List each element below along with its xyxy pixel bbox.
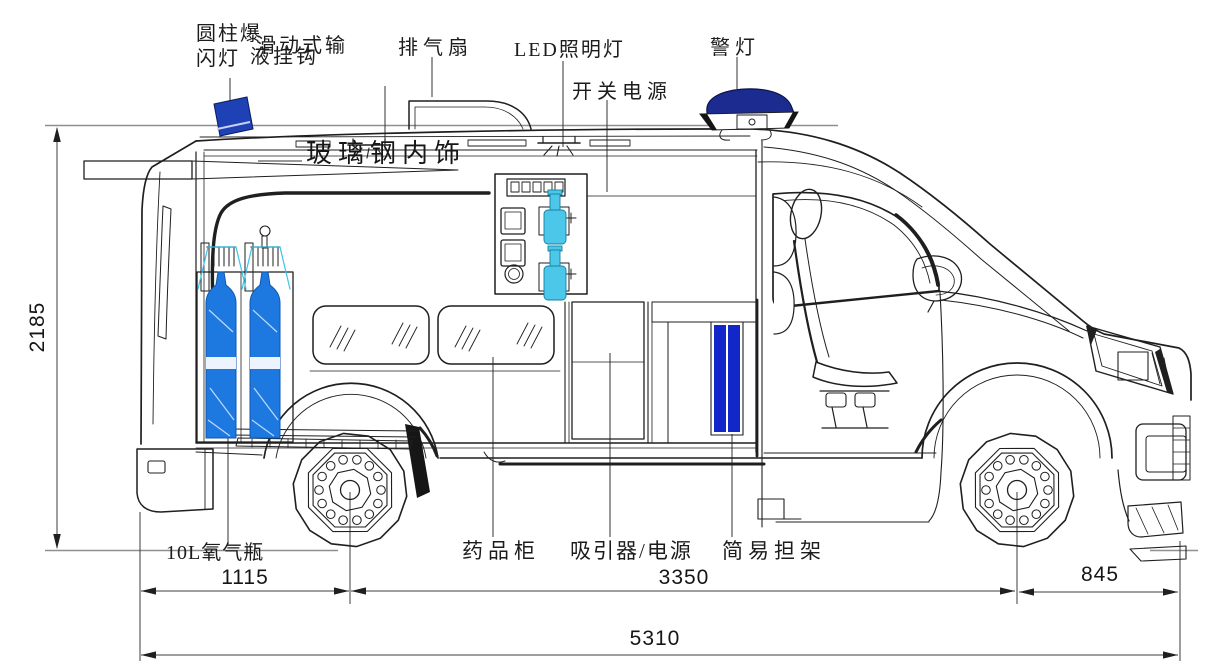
driver-seat xyxy=(786,186,897,428)
rear-edge xyxy=(141,141,196,444)
oxygen-cylinder-label: 10L氧气瓶 xyxy=(166,541,264,565)
front-bumper-lower xyxy=(1128,502,1183,537)
dim-wheelbase: 3350 xyxy=(639,566,729,590)
medicine-cabinet-label: 药品柜 xyxy=(462,539,540,564)
fiberglass-interior-liner xyxy=(212,193,489,303)
leader-lines xyxy=(228,57,737,544)
headlight xyxy=(1086,326,1173,394)
led-light-label: LED照明灯 xyxy=(514,38,625,62)
power-switch-label: 开关电源 xyxy=(572,80,672,104)
ceiling-rail xyxy=(590,140,630,146)
power-control-panel xyxy=(495,174,587,294)
rear-bumper xyxy=(137,449,213,512)
dim-overall-height: 2185 xyxy=(26,282,50,372)
stretcher-label: 简易担架 xyxy=(722,539,826,564)
dim-rear-section: 1115 xyxy=(200,566,290,590)
ambulance-technical-drawing: 圆柱爆闪灯 滑动式输 液挂钩 排气扇 LED照明灯 开关电源 警灯 玻璃钢内饰 … xyxy=(0,0,1216,672)
warning-light-label: 警灯 xyxy=(710,36,760,60)
dim-overall-length: 5310 xyxy=(610,627,700,651)
led-light-symbol xyxy=(538,137,580,156)
compartment-windows xyxy=(310,306,560,371)
aspirator-power-label: 吸引器/电源 xyxy=(570,539,693,564)
ceiling-rail xyxy=(468,140,526,146)
roof-outline xyxy=(196,129,1191,400)
iv-hook-label-line2: 液挂钩 xyxy=(250,45,319,69)
fiberglass-interior-label: 玻璃钢内饰 xyxy=(306,138,466,169)
warning-light-bar xyxy=(700,89,798,140)
cylindrical-strobe-light xyxy=(214,97,253,136)
aspirator-cabinet-door xyxy=(572,302,644,439)
oxygen-cylinders xyxy=(206,272,280,438)
front-wheel-arch xyxy=(922,363,1112,458)
rear-awning-pole xyxy=(84,161,192,179)
headrest xyxy=(774,272,794,334)
cab-window xyxy=(773,193,939,307)
cab-door-edge xyxy=(929,292,943,521)
stretcher-bars xyxy=(714,325,740,432)
dim-front-overhang: 845 xyxy=(1055,563,1145,587)
exhaust-fan-label: 排气扇 xyxy=(398,36,473,60)
